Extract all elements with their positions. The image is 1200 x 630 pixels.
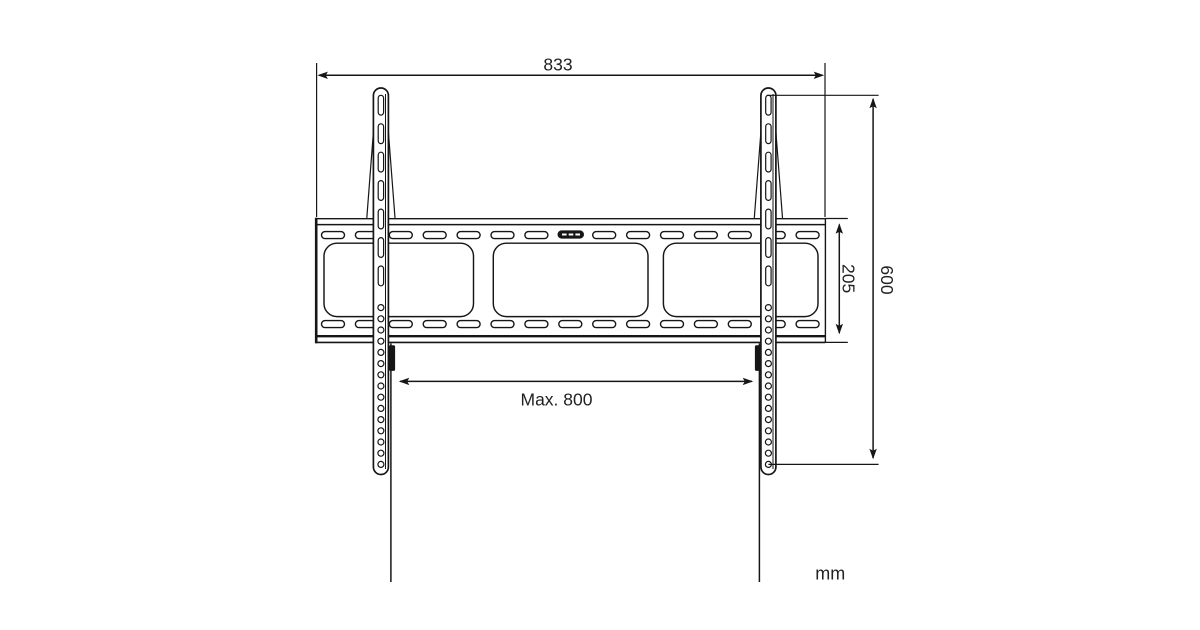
svg-text:Max. 800: Max. 800 xyxy=(521,390,593,410)
svg-text:833: 833 xyxy=(543,54,572,74)
svg-text:600: 600 xyxy=(877,265,897,294)
svg-text:mm: mm xyxy=(815,563,845,583)
svg-text:205: 205 xyxy=(838,264,858,293)
